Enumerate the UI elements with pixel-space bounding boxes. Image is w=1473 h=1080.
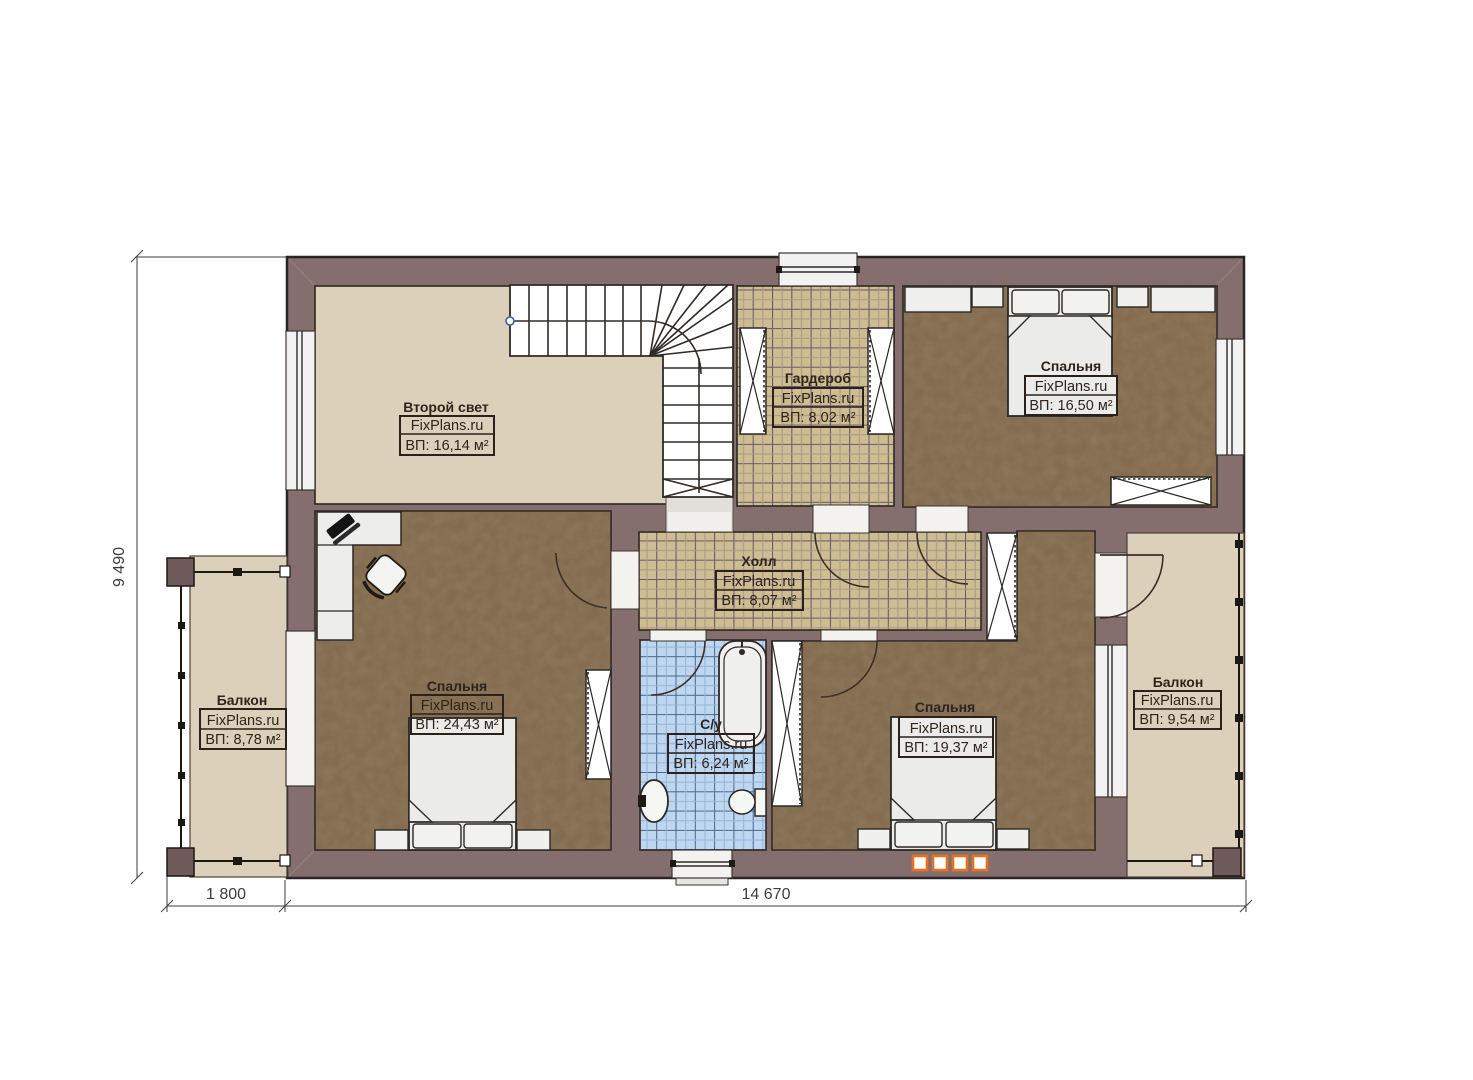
svg-text:FixPlans.ru: FixPlans.ru [207,713,280,729]
svg-text:Холл: Холл [741,553,776,569]
svg-text:Спальня: Спальня [427,678,487,694]
svg-text:ВП: 16,50 м²: ВП: 16,50 м² [1029,398,1112,414]
svg-text:С/у: С/у [700,716,722,732]
svg-text:Гардероб: Гардероб [785,370,852,386]
svg-text:Спальня: Спальня [915,699,975,715]
svg-text:FixPlans.ru: FixPlans.ru [723,574,796,590]
svg-text:FixPlans.ru: FixPlans.ru [1141,693,1214,709]
svg-text:FixPlans.ru: FixPlans.ru [421,698,494,714]
svg-text:ВП: 8,02 м²: ВП: 8,02 м² [780,410,855,426]
svg-text:ВП: 9,54 м²: ВП: 9,54 м² [1139,712,1214,728]
svg-text:ВП: 24,43 м²: ВП: 24,43 м² [415,717,498,733]
svg-text:FixPlans.ru: FixPlans.ru [910,721,983,737]
svg-text:1 800: 1 800 [206,886,246,903]
svg-text:FixPlans.ru: FixPlans.ru [782,391,855,407]
svg-text:Второй свет: Второй свет [403,399,489,415]
svg-text:Балкон: Балкон [217,692,268,708]
svg-text:ВП: 8,07 м²: ВП: 8,07 м² [721,593,796,609]
svg-text:ВП: 6,24 м²: ВП: 6,24 м² [673,756,748,772]
svg-text:Спальня: Спальня [1041,358,1101,374]
svg-text:ВП: 16,14 м²: ВП: 16,14 м² [405,438,488,454]
svg-text:9 490: 9 490 [111,547,128,587]
svg-text:FixPlans.ru: FixPlans.ru [1035,379,1108,395]
svg-text:FixPlans.ru: FixPlans.ru [411,418,484,434]
svg-text:Балкон: Балкон [1153,674,1204,690]
svg-text:FixPlans.ru: FixPlans.ru [675,737,748,753]
svg-text:14 670: 14 670 [742,886,791,903]
svg-text:ВП: 19,37 м²: ВП: 19,37 м² [904,740,987,756]
svg-text:ВП: 8,78 м²: ВП: 8,78 м² [205,732,280,748]
